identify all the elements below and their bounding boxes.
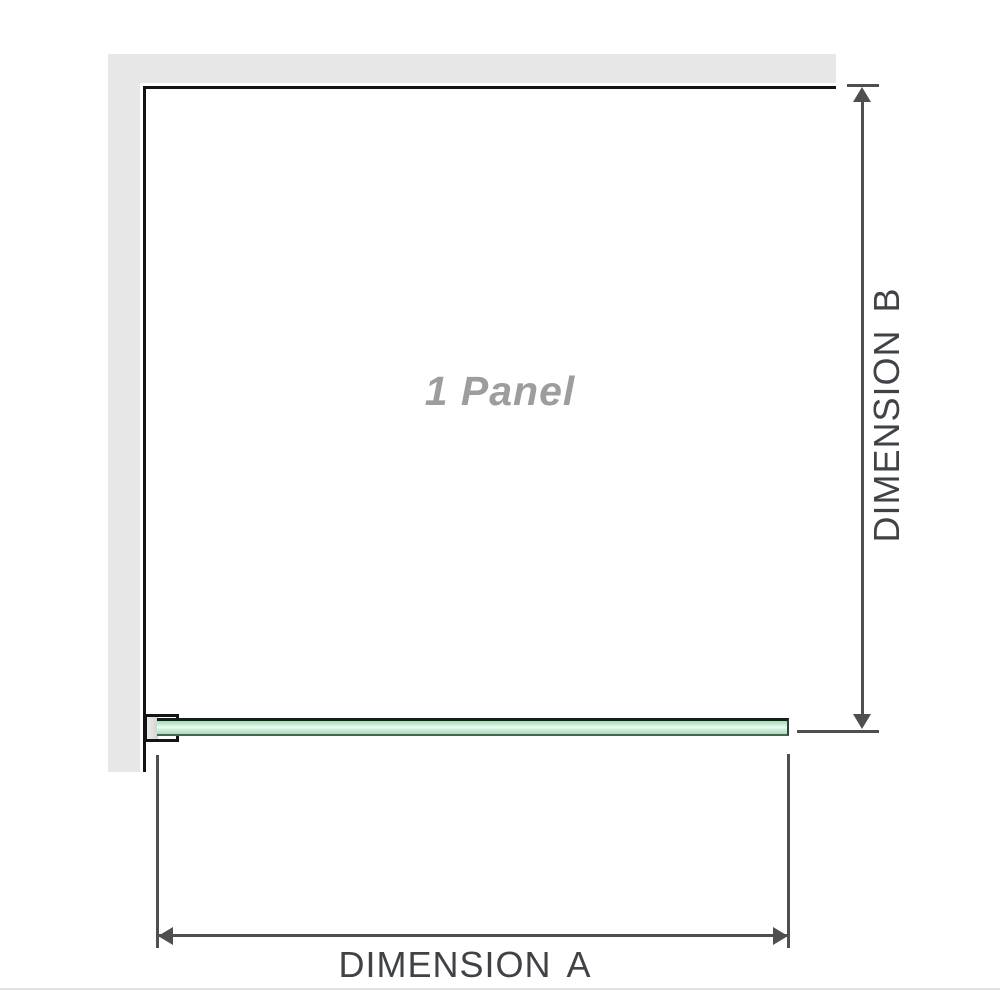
wall-left-bar	[108, 54, 140, 772]
glass-panel-bar	[157, 718, 789, 736]
dimension-b-arrow-down-icon	[853, 714, 871, 729]
dimension-a-label: DIMENSION A	[315, 944, 615, 986]
wall-top-bar	[108, 54, 836, 83]
dimension-a-extension-left	[156, 755, 159, 948]
dimension-b-line	[861, 98, 864, 718]
dimension-a-arrow-right-icon	[773, 927, 788, 945]
panel-count-label: 1 Panel	[340, 368, 660, 415]
dimension-b-label: DIMENSION B	[867, 265, 907, 565]
dimension-a-extension-right	[787, 754, 790, 948]
dimension-b-arrow-up-icon	[853, 87, 871, 102]
shower-panel-diagram: 1 Panel DIMENSION B DIMENSION A	[0, 0, 1000, 1000]
dimension-a-line	[157, 934, 788, 937]
page-edge-divider	[0, 988, 1000, 990]
dimension-a-arrow-left-icon	[158, 927, 173, 945]
dimension-b-tick-bottom	[797, 730, 879, 733]
panel-outline	[143, 86, 836, 772]
